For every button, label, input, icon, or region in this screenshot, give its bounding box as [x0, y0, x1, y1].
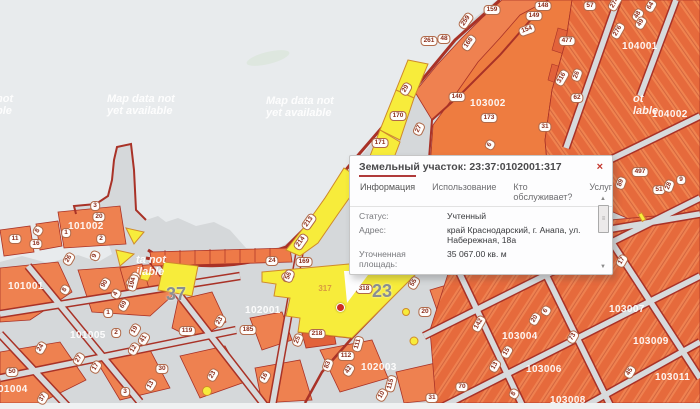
- info-row-label: Кадастровая стоимость:: [359, 273, 441, 276]
- scan-edge: [0, 403, 700, 409]
- info-row-value: Учтенный: [447, 211, 590, 222]
- tab-information[interactable]: Информация: [359, 175, 416, 206]
- info-row-value: 25 248.24 руб.: [447, 273, 590, 276]
- scroll-up-icon[interactable]: ▲: [597, 196, 609, 202]
- info-row-value: край Краснодарский, г. Анапа, ул. Набере…: [447, 225, 590, 246]
- info-row-label: Адрес:: [359, 225, 441, 246]
- parcel-info-popup: Земельный участок: 23:37:0102001:317 × И…: [349, 155, 613, 275]
- info-row: Адрес:край Краснодарский, г. Анапа, ул. …: [359, 225, 590, 246]
- popup-callout-tail: [344, 271, 371, 303]
- scroll-thumb[interactable]: ≡: [598, 205, 609, 233]
- info-row: Статус:Учтенный: [359, 211, 590, 222]
- info-row: Кадастровая стоимость:25 248.24 руб.: [359, 273, 590, 276]
- info-row-label: Статус:: [359, 211, 441, 222]
- cadastral-map-screen: Map data notyet availableMap data notyet…: [0, 0, 700, 409]
- info-row: Уточненная площадь:35 067.00 кв. м: [359, 249, 590, 270]
- info-row-value: 35 067.00 кв. м: [447, 249, 590, 270]
- tab-who-serves[interactable]: Кто обслуживает?: [512, 175, 573, 206]
- popup-rows: Статус:УчтенныйАдрес:край Краснодарский,…: [350, 207, 612, 275]
- popup-scrollbar[interactable]: ▲ ≡ ▼: [597, 196, 609, 270]
- popup-title: Земельный участок: 23:37:0102001:317: [359, 161, 562, 173]
- selected-parcel-pin: [336, 303, 345, 312]
- tab-usage[interactable]: Использование: [431, 175, 497, 206]
- close-icon[interactable]: ×: [597, 162, 603, 172]
- popup-tabs: ИнформацияИспользованиеКто обслуживает?У…: [350, 175, 612, 207]
- scroll-down-icon[interactable]: ▼: [597, 264, 609, 270]
- info-row-label: Уточненная площадь:: [359, 249, 441, 270]
